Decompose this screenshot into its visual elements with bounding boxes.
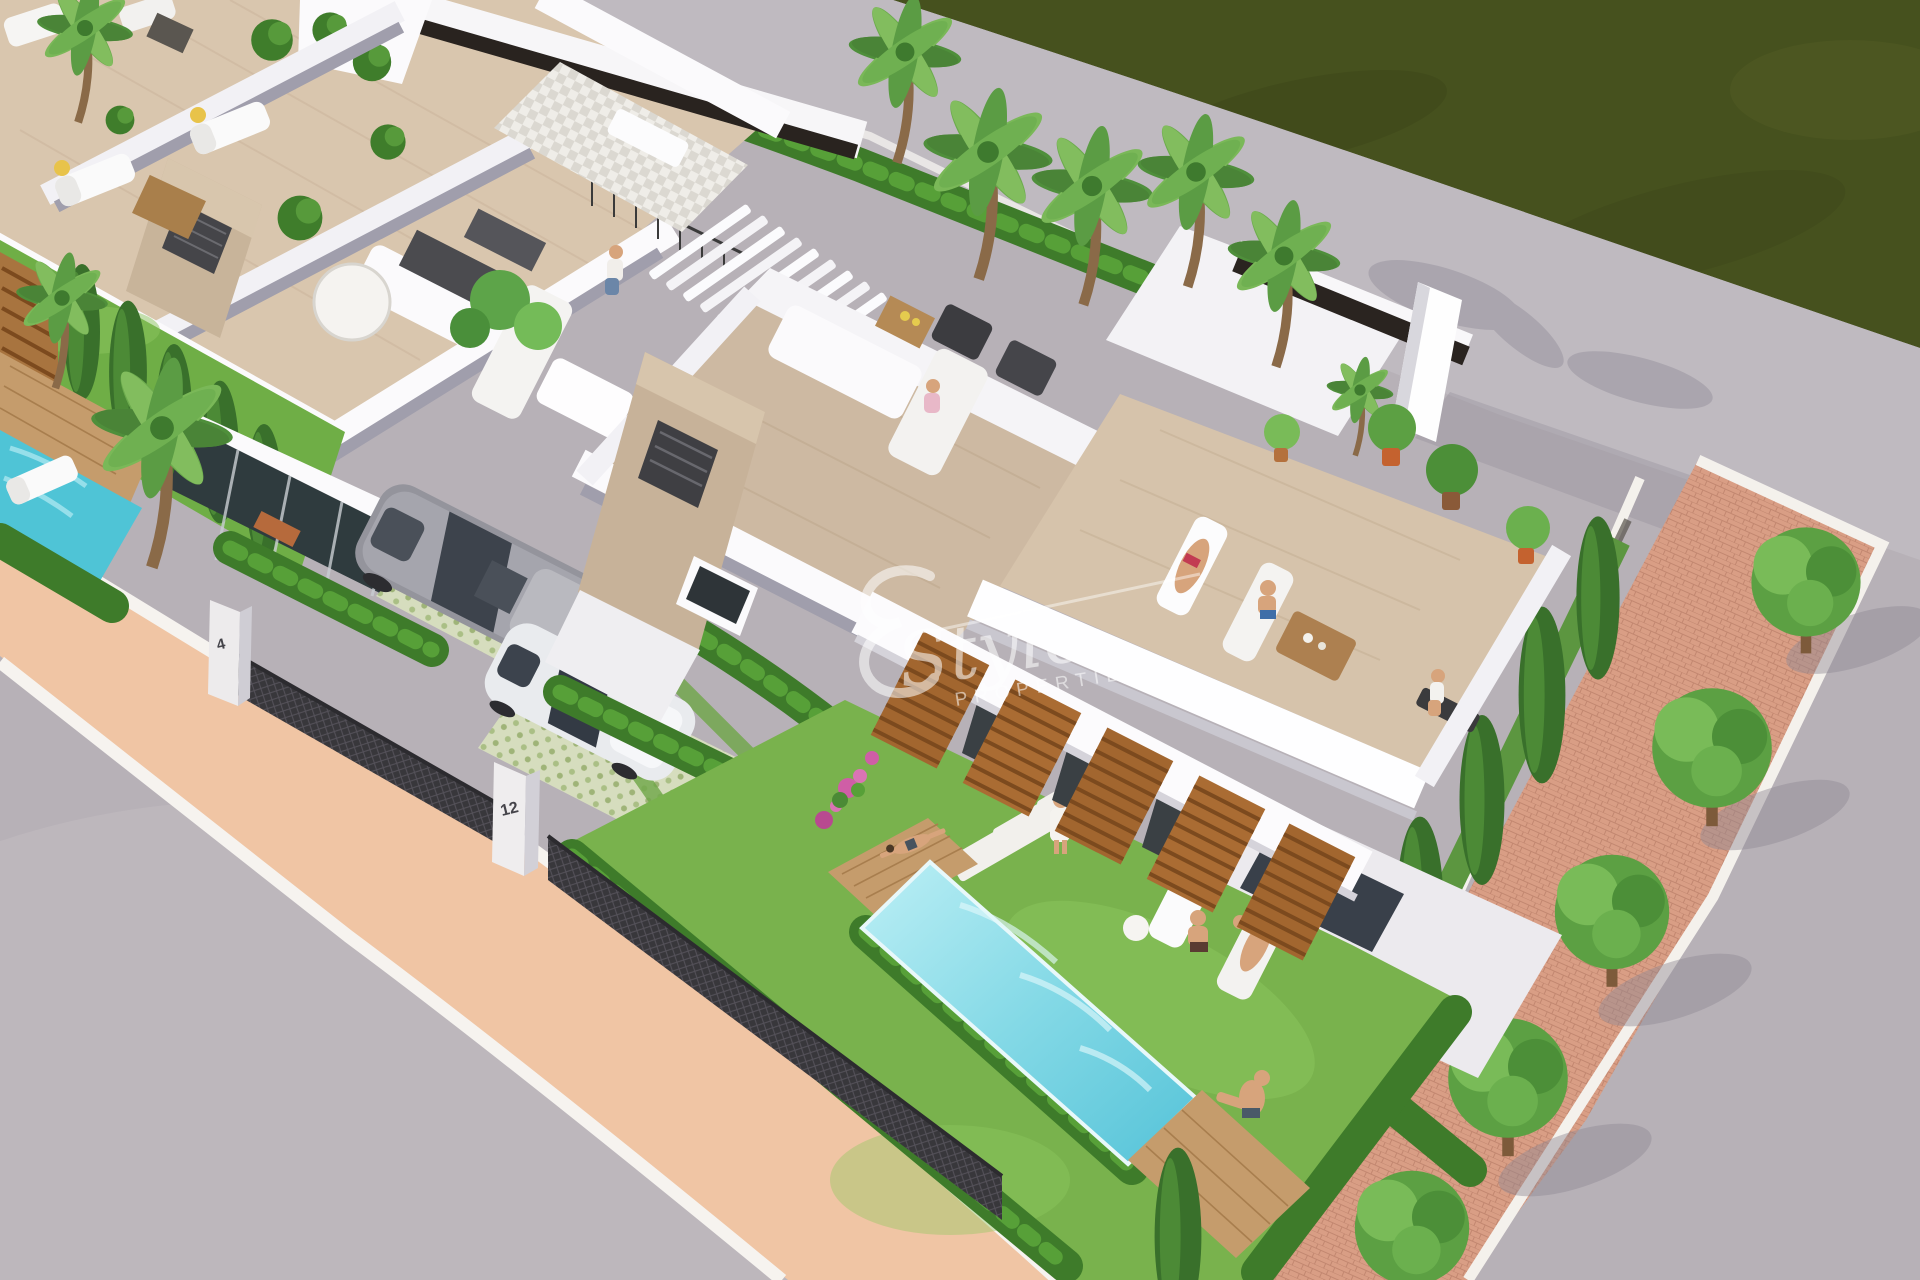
person-sitting-center-roof (924, 379, 940, 413)
scene-canvas: 4 12 Style PROPERTIES (0, 0, 1920, 1280)
sun-hat (54, 160, 70, 176)
fan-plant (514, 302, 562, 350)
flowers-yellow (900, 311, 910, 321)
gate-pillar: 12 (492, 762, 540, 876)
sun-hat (190, 107, 206, 123)
side-table (1123, 915, 1149, 941)
fan-plant (450, 308, 490, 348)
estate-render: 4 12 Style PROPERTIES (0, 0, 1920, 1280)
tree (1355, 1171, 1469, 1280)
gate-pillar: 4 (208, 600, 252, 706)
person-sitting-lounger (1190, 910, 1206, 926)
roof-plant (251, 19, 293, 61)
